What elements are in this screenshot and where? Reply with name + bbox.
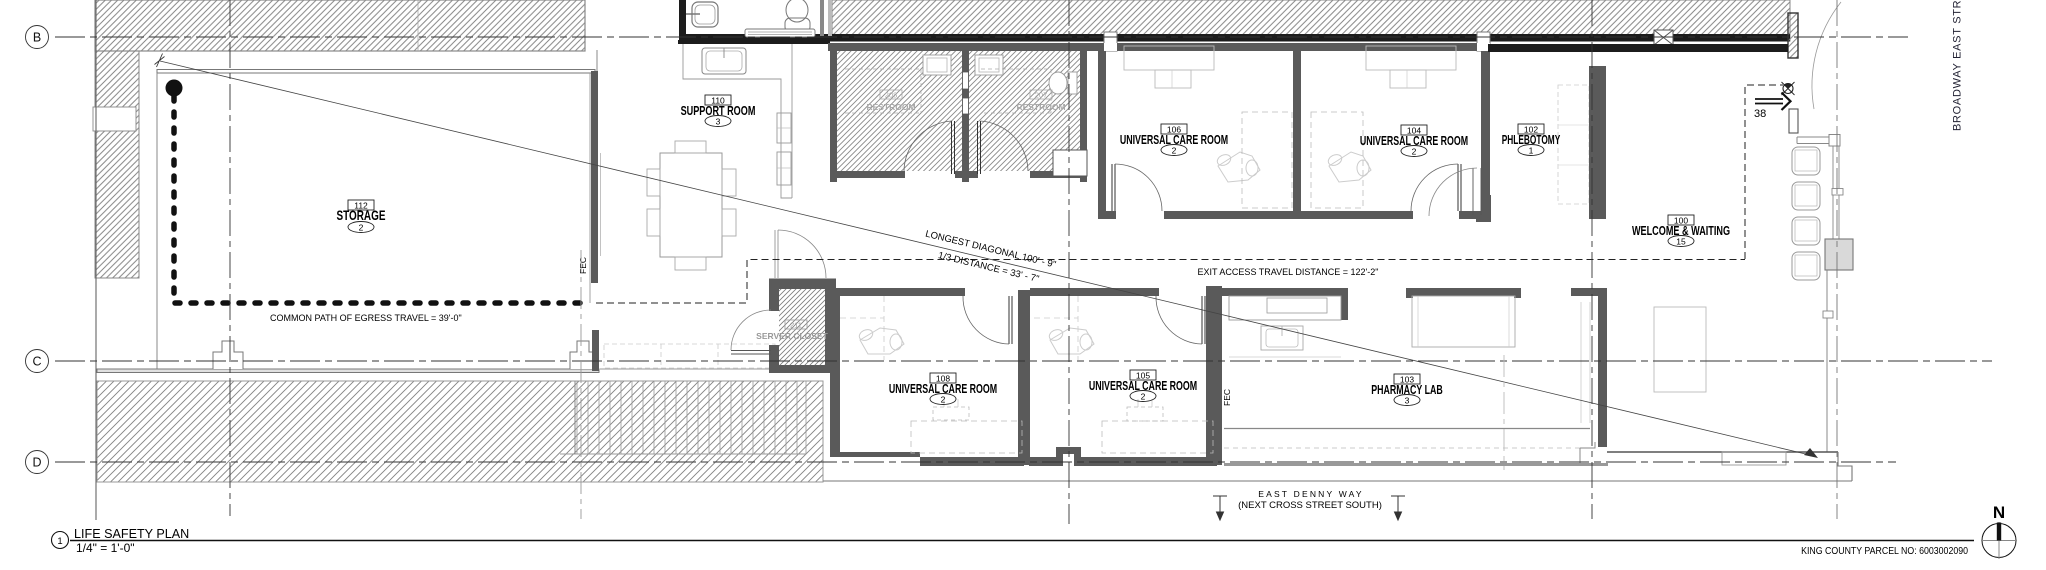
svg-text:3: 3	[716, 117, 721, 127]
svg-text:FEC: FEC	[1222, 389, 1232, 406]
svg-text:N: N	[1993, 503, 2005, 522]
svg-text:38: 38	[1754, 108, 1766, 120]
svg-text:1/4" = 1'-0": 1/4" = 1'-0"	[76, 541, 135, 555]
svg-text:1: 1	[1529, 146, 1534, 156]
svg-text:2: 2	[941, 395, 946, 405]
svg-text:D: D	[32, 456, 41, 470]
svg-text:SERVER CLOSET: SERVER CLOSET	[756, 331, 828, 341]
svg-text:RESTROOM: RESTROOM	[866, 102, 915, 112]
svg-text:2: 2	[1141, 392, 1146, 402]
svg-text:B: B	[33, 31, 41, 45]
svg-text:2: 2	[1172, 146, 1177, 156]
svg-text:EAST DENNY WAY: EAST DENNY WAY	[1258, 489, 1364, 499]
svg-text:207: 207	[1035, 91, 1048, 100]
svg-text:FEC: FEC	[578, 257, 588, 274]
svg-text:COMMON PATH OF EGRESS TRAVEL =: COMMON PATH OF EGRESS TRAVEL = 39'-0"	[270, 313, 462, 323]
svg-text:1: 1	[57, 536, 62, 547]
svg-text:3: 3	[1405, 396, 1410, 406]
svg-text:LIFE SAFETY PLAN: LIFE SAFETY PLAN	[74, 527, 189, 541]
svg-text:15: 15	[1676, 237, 1686, 247]
svg-text:C: C	[32, 355, 41, 369]
svg-text:2: 2	[1412, 147, 1417, 157]
svg-text:EXIT ACCESS TRAVEL DISTANCE =: EXIT ACCESS TRAVEL DISTANCE = 122'-2"	[1198, 267, 1379, 277]
svg-text:2: 2	[359, 223, 364, 233]
svg-text:BROADWAY EAST STREET: BROADWAY EAST STREET	[1951, 0, 1963, 131]
svg-text:211: 211	[790, 321, 802, 330]
svg-text:RESTROOM: RESTROOM	[1016, 102, 1065, 112]
svg-text:208: 208	[885, 91, 898, 100]
svg-text:KING COUNTY PARCEL NO: 6003002: KING COUNTY PARCEL NO: 6003002090	[1801, 544, 1968, 556]
svg-text:(NEXT CROSS STREET SOUTH): (NEXT CROSS STREET SOUTH)	[1238, 500, 1382, 511]
svg-text:STORAGE: STORAGE	[337, 207, 386, 223]
